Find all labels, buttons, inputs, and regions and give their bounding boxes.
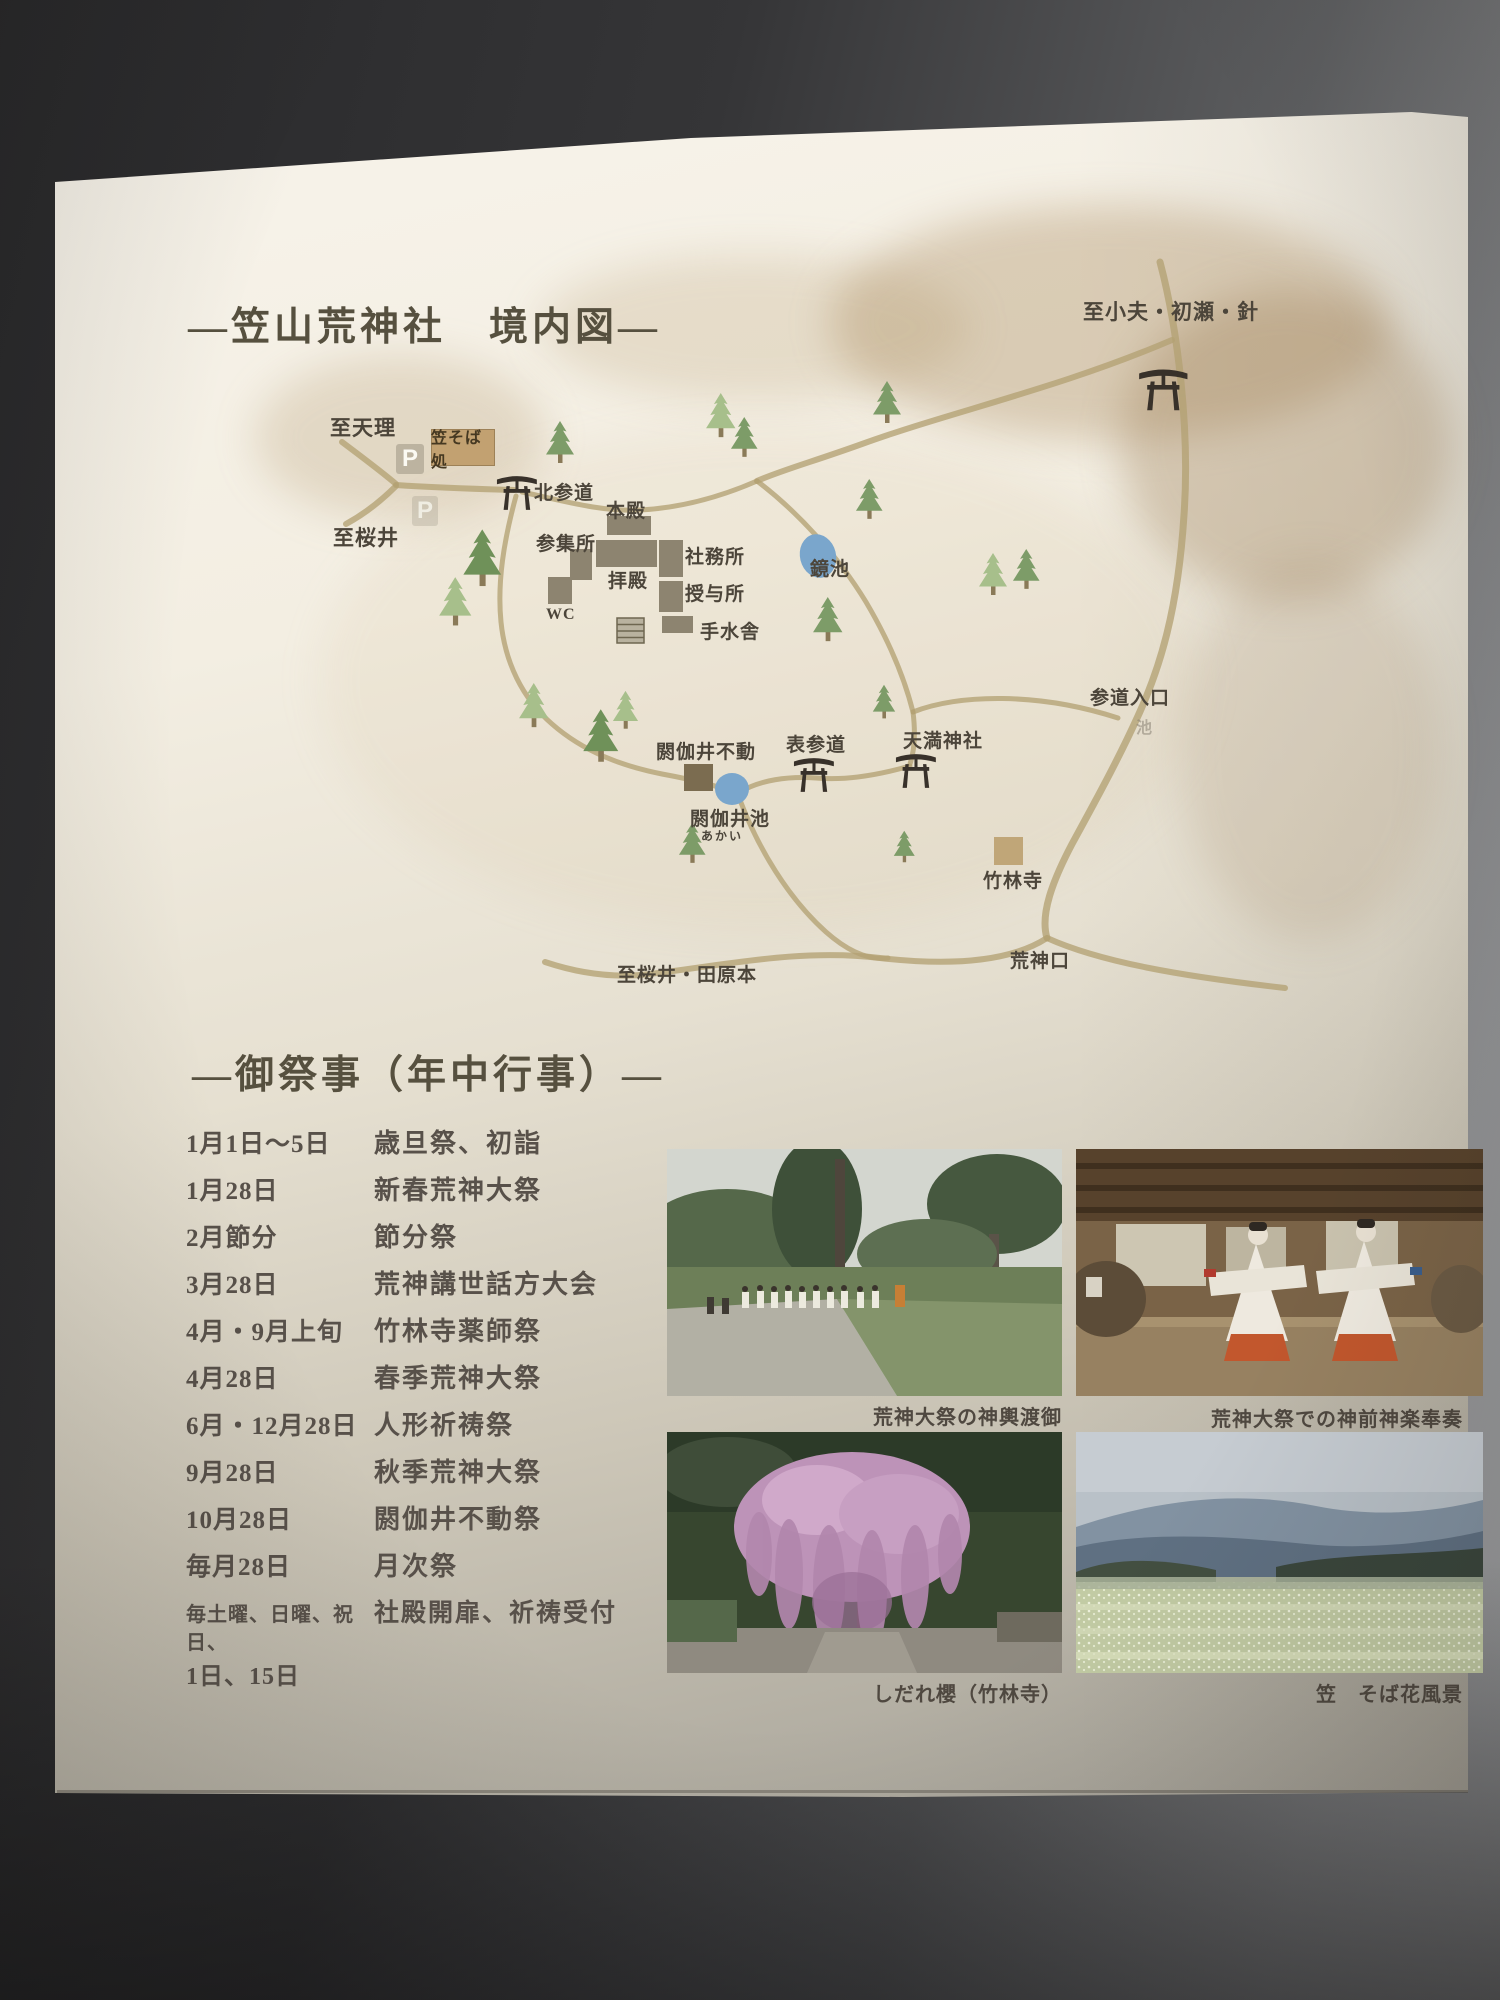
photo-mikoshi-procession xyxy=(667,1149,1062,1396)
festival-date: 1月28日 xyxy=(186,1178,374,1206)
map-label-akai-furigana: あかい xyxy=(701,827,743,844)
festival-date: 10月28日 xyxy=(186,1507,374,1535)
parking-icon: P xyxy=(396,444,424,474)
map-label-wc: WC xyxy=(546,606,576,624)
festival-date: 毎土曜、日曜、祝日、 1日、15日 xyxy=(186,1601,374,1691)
festival-name: 節分祭 xyxy=(374,1224,458,1252)
festival-name: 秋季荒神大祭 xyxy=(374,1459,542,1487)
map-label-temizusha: 手水舎 xyxy=(700,617,760,644)
map-label-sando-iriguchi: 参道入口 xyxy=(1090,683,1170,710)
shrine-grounds-map-drawing xyxy=(0,0,1500,1010)
parking-icon: P xyxy=(412,496,438,526)
map-label-juyosho: 授与所 xyxy=(685,579,745,606)
photo-caption-cherry: しだれ櫻（竹林寺） xyxy=(667,1678,1062,1707)
map-label-kojin-guchi: 荒神口 xyxy=(1010,946,1070,973)
map-label-ike: 池 xyxy=(1136,714,1153,738)
map-label-to-tenri: 至天理 xyxy=(330,412,396,442)
photograph-of-shrine-pamphlet: { "palette": { "paper": "#f3eee3", "back… xyxy=(0,0,1500,2000)
map-label-tenman-jinja: 天満神社 xyxy=(903,726,983,753)
festival-section-title: —御祭事（年中行事）— xyxy=(192,1044,665,1100)
festival-date: 2月節分 xyxy=(186,1225,374,1253)
torii-icon xyxy=(896,754,936,788)
festival-name: 春季荒神大祭 xyxy=(374,1365,542,1393)
map-label-to-sakurai-tawaramoto: 至桜井・田原本 xyxy=(617,960,757,987)
map-label-honden: 本殿 xyxy=(606,496,646,523)
photo-caption-mikoshi: 荒神大祭の神輿渡御 xyxy=(667,1401,1062,1430)
festival-date-line1: 毎土曜、日曜、祝日、 xyxy=(186,1601,374,1657)
festival-name: 人形祈祷祭 xyxy=(374,1412,514,1440)
chikurinji-building xyxy=(994,837,1023,865)
festival-date: 毎月28日 xyxy=(186,1554,374,1582)
map-label-shamusho: 社務所 xyxy=(685,542,745,569)
festival-name: 社殿開扉、祈祷受付 xyxy=(374,1600,617,1628)
festival-name: 荒神講世話方大会 xyxy=(374,1271,598,1299)
photo-caption-kagura: 荒神大祭での神前神楽奉奏 xyxy=(1076,1403,1463,1432)
map-label-kita-sando: 北参道 xyxy=(534,478,594,505)
photo-soba-field xyxy=(1076,1432,1483,1673)
festival-name: 閼伽井不動祭 xyxy=(374,1506,542,1534)
festival-date: 3月28日 xyxy=(186,1272,374,1300)
festival-name: 竹林寺薬師祭 xyxy=(374,1318,542,1346)
festival-date: 1月1日～5日 xyxy=(186,1131,374,1159)
map-label-sanshujo: 参集所 xyxy=(536,529,596,556)
stairs-glyph xyxy=(617,618,644,643)
map-label-to-obu-hase-hari: 至小夫・初瀬・針 xyxy=(1083,296,1259,326)
festival-name: 月次祭 xyxy=(374,1553,458,1581)
photo-kagura-performance xyxy=(1076,1149,1483,1396)
map-label-chikurinji: 竹林寺 xyxy=(983,866,1043,893)
map-label-haiden: 拝殿 xyxy=(608,566,648,593)
festival-date: 6月・12月28日 xyxy=(186,1413,374,1441)
map-label-kagami-ike: 鏡池 xyxy=(810,554,850,581)
map-label-akai-fudo: 閼伽井不動 xyxy=(656,737,756,764)
festival-date-line2: 1日、15日 xyxy=(186,1663,374,1691)
festival-date: 4月28日 xyxy=(186,1366,374,1394)
festival-name: 歳旦祭、初詣 xyxy=(374,1130,542,1158)
photo-weeping-cherry xyxy=(667,1432,1062,1673)
akai-fudo-building xyxy=(684,764,713,791)
akai-pond xyxy=(715,773,749,805)
paper-fold-edge xyxy=(57,1790,1468,1865)
photo-caption-soba: 笠 そば花風景 xyxy=(1076,1678,1463,1707)
map-label-to-sakurai: 至桜井 xyxy=(333,522,399,552)
festival-date: 9月28日 xyxy=(186,1460,374,1488)
festival-date: 4月・9月上旬 xyxy=(186,1319,374,1347)
festival-name: 新春荒神大祭 xyxy=(374,1177,542,1205)
soba-shop-box: 笠そば処 xyxy=(431,429,495,466)
map-label-omote-sando: 表参道 xyxy=(786,730,846,757)
